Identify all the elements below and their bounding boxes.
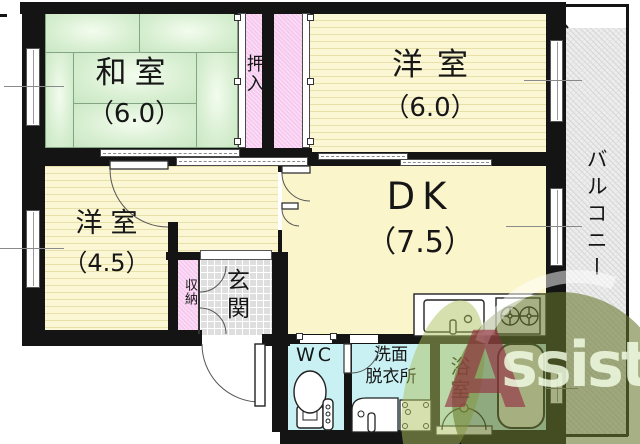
window-dk-east xyxy=(550,188,563,266)
tatami-mat xyxy=(139,13,238,53)
label-yokushitsu: 浴室 xyxy=(447,356,470,402)
label-senmen-2: 脱衣所 xyxy=(349,368,433,388)
floor-plan: 和室 （6.0） 洋室 （6.0） 洋室 （4.5） DK （7.5） 押入 バ… xyxy=(0,0,640,444)
window-center-tick xyxy=(4,86,64,87)
fusuma-handle xyxy=(307,14,314,21)
tatami-mat xyxy=(196,52,238,148)
door-post xyxy=(330,333,337,340)
balcony-rail-bottom xyxy=(566,434,628,437)
sliding-door-hallway xyxy=(176,157,308,166)
window-center-tick xyxy=(524,80,582,81)
window-yoshitsu6-east xyxy=(550,40,563,122)
label-yoshitsu45: 洋室 xyxy=(45,208,168,239)
window-center-tick xyxy=(538,388,578,389)
room-oshiire-right xyxy=(274,13,302,148)
wall-bottom xyxy=(280,430,566,444)
label-wc: WC xyxy=(288,345,342,367)
wall-bottom-left xyxy=(22,330,202,346)
door-post xyxy=(296,333,303,340)
label-balcony: バルコニー xyxy=(584,148,608,283)
balcony-rail-right xyxy=(626,4,629,436)
hallway-floor xyxy=(168,166,178,222)
balcony-rail-top xyxy=(556,4,628,7)
label-washitsu-size: （6.0） xyxy=(73,100,196,130)
fusuma-handle xyxy=(234,14,241,21)
wall-shunou-east xyxy=(198,260,200,334)
sliding-door-yoshitsu6-dk xyxy=(400,159,492,166)
wc-door-slot xyxy=(300,335,332,343)
wall-top xyxy=(20,2,556,14)
wall-stub-mark xyxy=(0,14,7,17)
sliding-door-yoshitsu6-dk xyxy=(318,153,408,160)
label-yoshitsu6: 洋室 xyxy=(330,48,530,84)
window-yoshitsu45-west xyxy=(26,210,40,288)
door-entrance xyxy=(202,344,265,406)
label-shunou: 収納 xyxy=(181,278,196,306)
entrance-step xyxy=(200,250,272,260)
wall-above-shunou xyxy=(166,252,200,260)
fusuma-handle xyxy=(307,78,314,85)
window-washitsu-west xyxy=(26,48,40,126)
wall-genkan-south xyxy=(262,334,290,346)
window-center-tick xyxy=(0,248,64,249)
hallway-floor xyxy=(178,166,278,252)
label-senmen-1: 洗面 xyxy=(352,346,430,366)
sliding-door-washitsu xyxy=(100,149,240,157)
wall-yoshitsu45-east xyxy=(168,222,178,332)
label-genkan: 玄関 xyxy=(222,268,248,324)
label-dk-size: （7.5） xyxy=(320,226,520,261)
tatami-mat xyxy=(45,13,140,53)
fusuma-handle xyxy=(234,78,241,85)
fusuma-handle xyxy=(234,138,241,145)
label-yoshitsu6-size: （6.0） xyxy=(330,94,530,124)
fusuma-handle xyxy=(307,138,314,145)
label-yoshitsu45-size: （4.5） xyxy=(45,250,168,278)
senmen-door-open xyxy=(350,335,378,343)
tatami-mat xyxy=(45,52,74,148)
label-oshiire: 押入 xyxy=(243,54,264,94)
label-dk: DK xyxy=(320,176,520,219)
wall-hall-dk-stub xyxy=(278,230,282,254)
wall-genkan-south xyxy=(190,334,202,346)
label-washitsu: 和室 xyxy=(73,56,196,92)
